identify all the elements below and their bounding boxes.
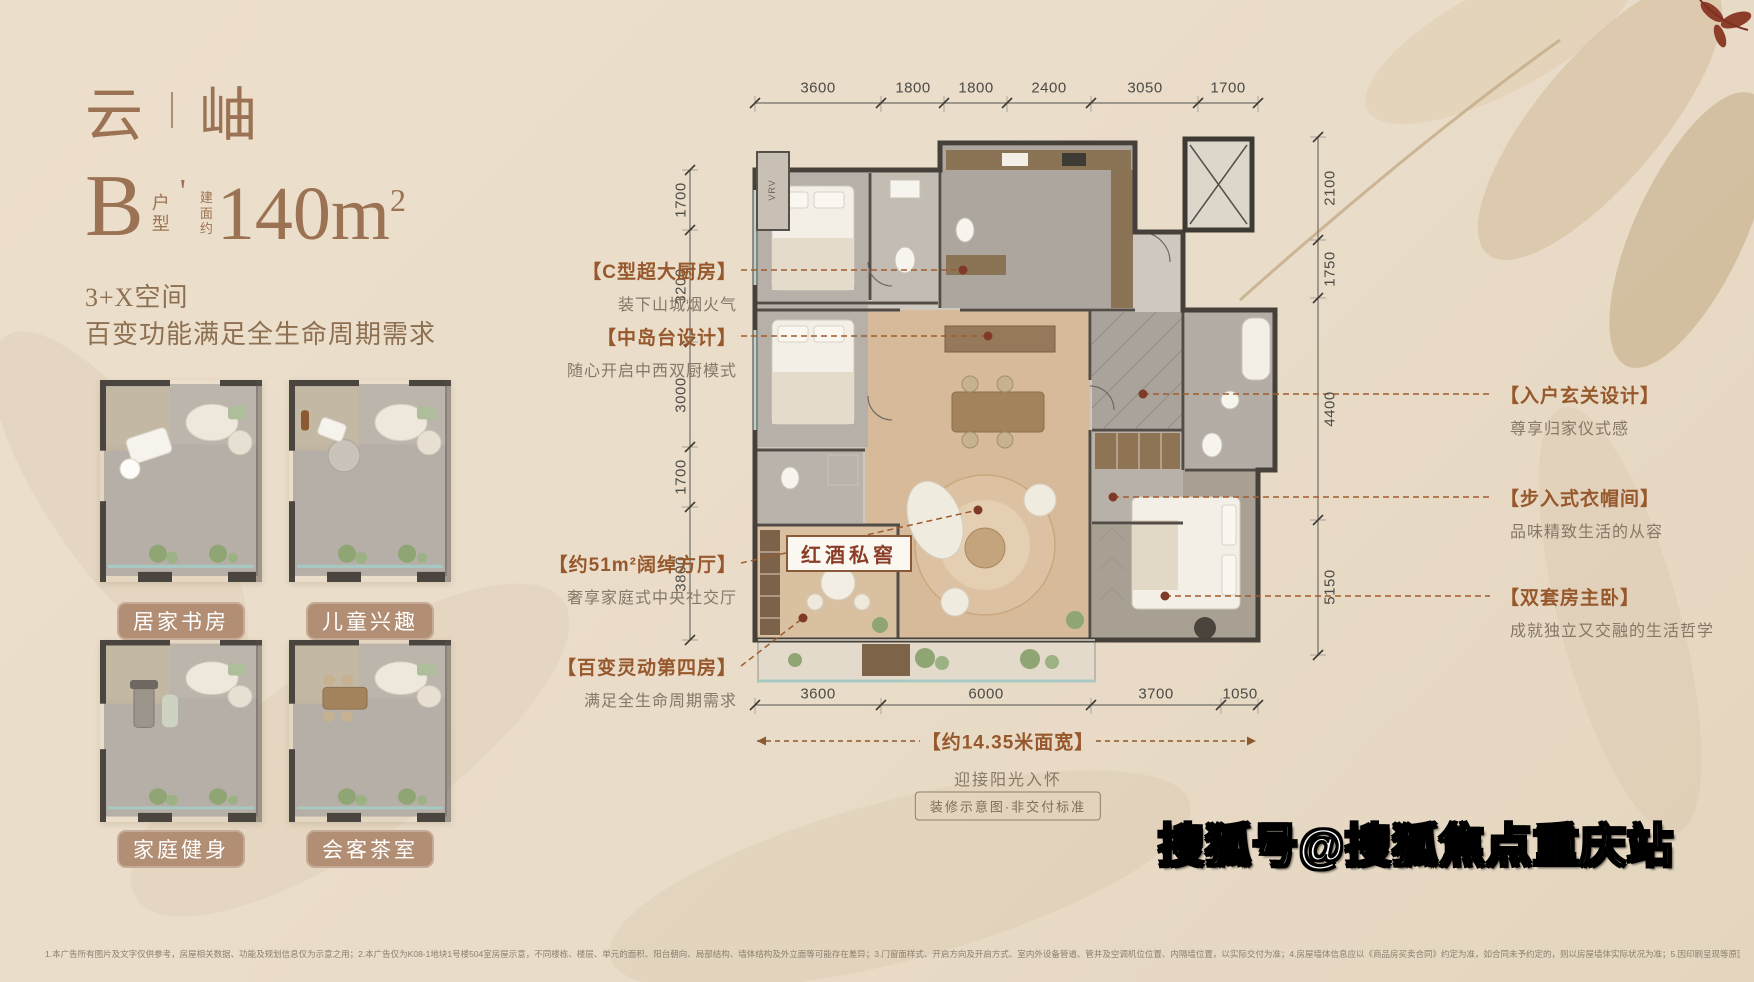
dim-top-1: 3600 [800, 80, 835, 97]
callout-master-suite: 【双套房主卧】 成就独立又交融的生活哲学 [1500, 583, 1714, 641]
title-char-right: 岫 [199, 68, 259, 152]
area-value: 140m2 [217, 184, 406, 245]
facade-width-note: 【约14.35米面宽】 [914, 728, 1103, 755]
area-prefix: 建 面 约 [200, 190, 213, 237]
unit-type-row: B 户 型 ' 建 面 约 140m2 [85, 170, 436, 245]
project-title: 云 岫 [85, 68, 436, 152]
callout-flex-room-title: 【百变灵动第四房】 [557, 653, 737, 680]
callout-foyer-subtitle: 尊享归家仪式感 [1500, 415, 1660, 439]
facade-width-subtitle: 迎接阳光入怀 [954, 766, 1062, 790]
dim-right-1: 2100 [1322, 170, 1339, 205]
dim-bottom-3: 3700 [1138, 686, 1173, 703]
sohu-watermark: 搜狐号@搜狐焦点重庆站 [1158, 810, 1674, 876]
callout-flex-room: 【百变灵动第四房】 满足全生命周期需求 [557, 653, 737, 711]
thumbnail-study-room [100, 380, 262, 582]
corner-leaves [1240, 0, 1754, 389]
callout-kitchen: 【C型超大厨房】 装下山城烟火气 [582, 257, 737, 315]
scene-label-kids: 儿童兴趣 [306, 602, 434, 640]
dim-right-2: 1750 [1322, 251, 1339, 286]
scene-label-tea: 会客茶室 [306, 830, 434, 868]
thumbnail-home-gym [100, 640, 262, 822]
callout-island-subtitle: 随心开启中西双厨模式 [567, 357, 737, 381]
callout-closet: 【步入式衣帽间】 品味精致生活的从容 [1500, 484, 1663, 542]
tick-mark: ' [180, 173, 186, 211]
dim-left-1: 1700 [673, 182, 690, 217]
dim-right-4: 5150 [1322, 569, 1339, 604]
callout-foyer: 【入户玄关设计】 尊享归家仪式感 [1500, 381, 1660, 439]
dim-top-4: 2400 [1031, 80, 1066, 97]
thumbnail-kids-room [289, 380, 451, 582]
scene-label-study: 居家书房 [117, 602, 245, 640]
callout-living-hall-subtitle: 奢享家庭式中央社交厅 [549, 584, 737, 608]
wine-cellar-label: 红酒私窖 [786, 535, 912, 572]
title-char-left: 云 [85, 68, 145, 152]
callout-master-suite-title: 【双套房主卧】 [1500, 583, 1714, 610]
dim-bottom-4: 1050 [1222, 686, 1257, 703]
decoration-disclaimer-badge: 装修示意图·非交付标准 [915, 792, 1101, 821]
callout-master-suite-subtitle: 成就独立又交融的生活哲学 [1500, 617, 1714, 641]
slogan-line-2: 百变功能满足全生命周期需求 [85, 316, 436, 354]
dim-bottom-1: 3600 [800, 686, 835, 703]
unit-type-label: 户 型 [152, 193, 170, 234]
slogan: 3+X空间 百变功能满足全生命周期需求 [85, 279, 436, 354]
callout-living-hall: 【约51m²阔绰方厅】 奢享家庭式中央社交厅 [549, 550, 737, 608]
legal-fineprint: 1.本广告所有图片及文字仅供参考，房屋相关数据、功能及规划信息仅为示意之用；2.… [45, 948, 1740, 960]
callout-closet-subtitle: 品味精致生活的从容 [1500, 518, 1663, 542]
dim-top-5: 3050 [1127, 80, 1162, 97]
poster-page: 云 岫 B 户 型 ' 建 面 约 140m2 3+X空间 百变功能满足全生命周… [0, 0, 1754, 982]
dim-bottom-2: 6000 [968, 686, 1003, 703]
dim-left-4: 1700 [673, 459, 690, 494]
callout-island-title: 【中岛台设计】 [567, 323, 737, 350]
callout-closet-title: 【步入式衣帽间】 [1500, 484, 1663, 511]
red-sprig [1697, 0, 1753, 49]
dim-top-6: 1700 [1210, 80, 1245, 97]
area-superscript: 2 [390, 182, 406, 218]
dim-left-3: 3000 [673, 377, 690, 412]
dim-top-2: 1800 [895, 80, 930, 97]
title-divider [171, 92, 173, 128]
thumbnail-tea-room [289, 640, 451, 822]
vrv-label: VRV [767, 179, 777, 200]
callout-living-hall-title: 【约51m²阔绰方厅】 [549, 550, 737, 577]
dim-right-3: 4400 [1322, 391, 1339, 426]
callout-island: 【中岛台设计】 随心开启中西双厨模式 [567, 323, 737, 381]
brand-block: 云 岫 B 户 型 ' 建 面 约 140m2 3+X空间 百变功能满足全生命周… [85, 68, 436, 354]
dim-top-3: 1800 [958, 80, 993, 97]
scene-label-gym: 家庭健身 [117, 830, 245, 868]
callout-flex-room-subtitle: 满足全生命周期需求 [557, 687, 737, 711]
unit-type-letter: B [85, 170, 144, 245]
callout-kitchen-title: 【C型超大厨房】 [582, 257, 737, 284]
callout-foyer-title: 【入户玄关设计】 [1500, 381, 1660, 408]
callout-kitchen-subtitle: 装下山城烟火气 [582, 291, 737, 315]
slogan-line-1: 3+X空间 [85, 279, 436, 317]
